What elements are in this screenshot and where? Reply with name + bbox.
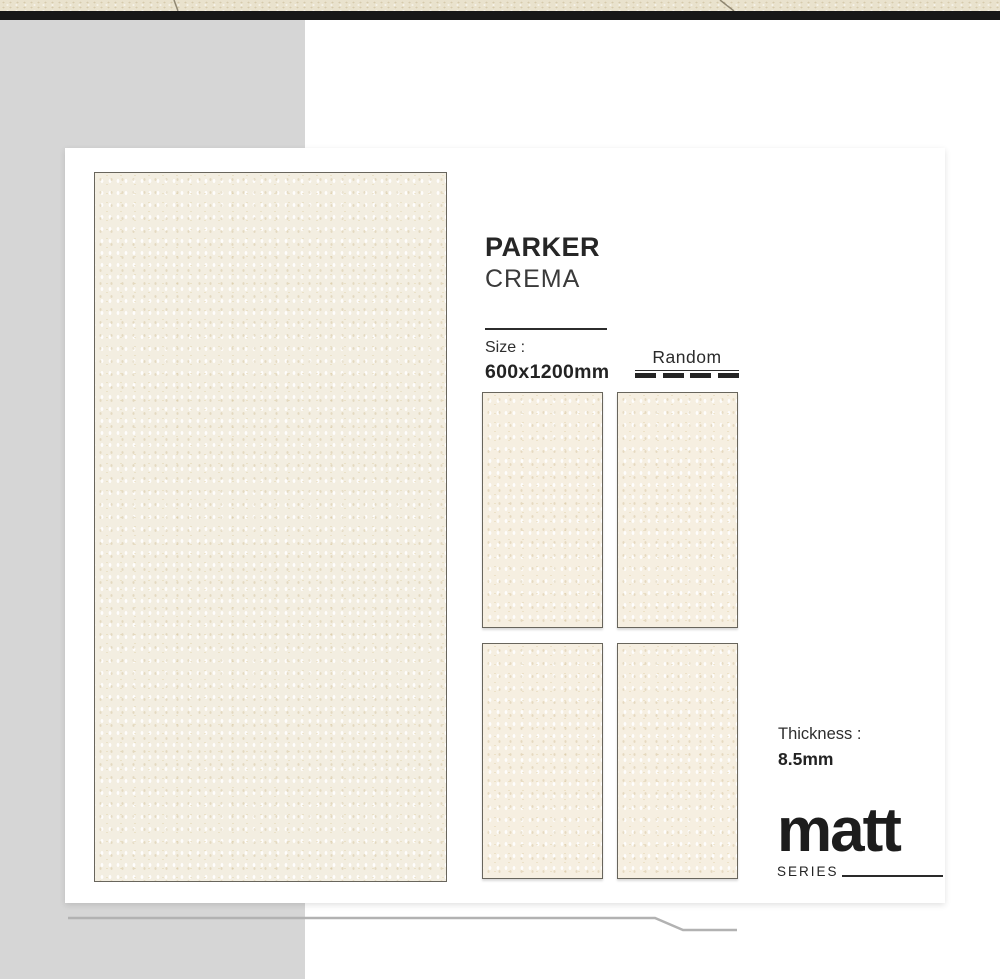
dash-mark (635, 373, 656, 378)
catalog-page: PARKER CREMA Size : 600x1200mm Random (0, 0, 1000, 979)
face-tile-swatch (482, 643, 603, 879)
series-label: SERIES (777, 864, 839, 879)
matt-logo: matt (777, 798, 943, 864)
product-variant: CREMA (485, 267, 600, 292)
dash-mark (690, 373, 711, 378)
random-underline (635, 370, 739, 371)
face-tile-swatch (617, 643, 738, 879)
size-value: 600x1200mm (485, 361, 609, 384)
grout-lines (0, 0, 1000, 11)
decorative-stepped-line (65, 908, 755, 936)
random-label: Random (635, 347, 739, 368)
series-logo-block: matt SERIES (777, 798, 943, 879)
face-variant-grid (482, 392, 738, 879)
face-tile-swatch (482, 392, 603, 628)
top-tile-photo-strip (0, 0, 1000, 11)
top-black-bar (0, 11, 1000, 20)
dash-mark (718, 373, 739, 378)
dash-mark (663, 373, 684, 378)
product-name: PARKER (485, 234, 600, 261)
size-label: Size : (485, 339, 609, 357)
face-tile-swatch (617, 392, 738, 628)
thickness-label: Thickness : (778, 726, 861, 743)
series-underline (842, 875, 943, 877)
product-card: PARKER CREMA Size : 600x1200mm Random (65, 148, 945, 903)
thickness-block: Thickness : 8.5mm (778, 726, 861, 768)
size-block: Size : 600x1200mm (485, 328, 609, 384)
product-title-block: PARKER CREMA (485, 234, 600, 292)
large-tile-swatch (94, 172, 447, 882)
random-dash-marks (635, 373, 739, 378)
random-pattern-block: Random (635, 347, 739, 378)
series-row: SERIES (777, 864, 943, 879)
thickness-value: 8.5mm (778, 751, 861, 769)
size-overline (485, 328, 607, 330)
